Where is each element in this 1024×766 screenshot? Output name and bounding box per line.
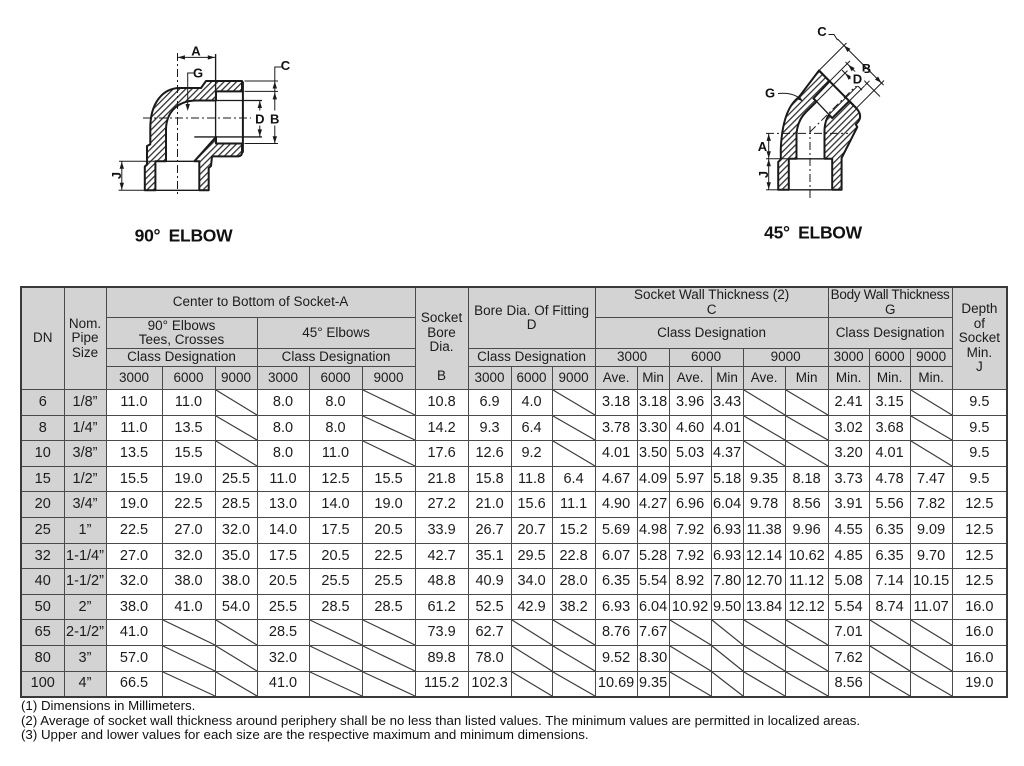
svg-text:J: J: [110, 172, 124, 179]
svg-text:J: J: [757, 171, 771, 178]
svg-text:A: A: [191, 44, 201, 59]
svg-text:90° ELBOW: 90° ELBOW: [135, 226, 233, 246]
svg-text:45° ELBOW: 45° ELBOW: [764, 223, 862, 243]
svg-text:G: G: [765, 86, 775, 101]
svg-text:A: A: [758, 139, 768, 154]
svg-text:D: D: [853, 72, 862, 87]
svg-text:B: B: [270, 112, 279, 127]
svg-text:D: D: [255, 112, 264, 127]
svg-text:G: G: [193, 66, 203, 81]
svg-text:C: C: [817, 24, 827, 39]
svg-text:C: C: [281, 58, 291, 73]
